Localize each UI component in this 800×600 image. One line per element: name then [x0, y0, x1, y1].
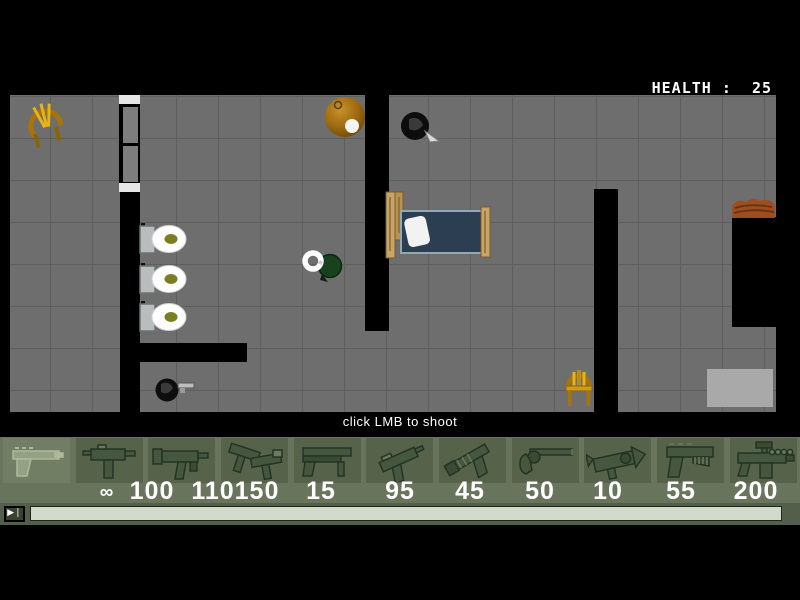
- ammo-count-revolver: 50: [525, 477, 555, 506]
- toilet-3: [138, 300, 188, 336]
- bed: [384, 191, 494, 261]
- ammo-count-mac10: 100: [130, 477, 175, 506]
- machine-pistol-icon: [659, 440, 723, 482]
- enemy-knife: [399, 109, 443, 147]
- door-cap-bottom: [119, 183, 140, 192]
- round-table: [323, 95, 367, 139]
- enemy-pistol: [153, 376, 203, 404]
- wall-left-horizontal: [140, 343, 247, 362]
- ammo-count-desert-eagle: ∞: [100, 482, 115, 504]
- chair-top-left: [22, 97, 70, 151]
- revolver-icon: [514, 440, 578, 482]
- mac10-icon: [78, 440, 142, 482]
- wall-left-vertical: [120, 191, 140, 412]
- weapon-bar: ∞ 100 110 150 15 95 45 50 10 55 200: [0, 437, 800, 503]
- ammo-count-rocket-launcher: 10: [593, 477, 623, 506]
- door-panel-bottom: [122, 145, 139, 183]
- ammo-count-silenced-pistol: 45: [455, 477, 485, 506]
- rocket-launcher-icon: [586, 440, 650, 482]
- ammo-count-shotgun: 15: [306, 477, 336, 506]
- play-button[interactable]: ▶❘: [4, 506, 25, 522]
- weapon-slot-desert-eagle[interactable]: [3, 438, 70, 483]
- player-character: [298, 248, 348, 286]
- desert-eagle-icon: [5, 440, 69, 482]
- toilet-1: [138, 222, 188, 258]
- wall-right-vertical: [594, 189, 618, 412]
- door-cap-top: [119, 95, 140, 104]
- game-stage[interactable]: HEALTH : 25: [0, 0, 800, 600]
- progress-track[interactable]: [30, 506, 782, 521]
- scoped-rifle-icon: [732, 440, 796, 482]
- mp5-icon: [150, 440, 214, 482]
- tmp-icon: [368, 440, 432, 482]
- ammo-count-tmp: 95: [385, 477, 415, 506]
- hint-text: click LMB to shoot: [0, 414, 800, 429]
- shotgun-icon: [296, 440, 360, 482]
- game-map[interactable]: [10, 95, 776, 412]
- wall-far-right-block: [732, 217, 776, 327]
- ammo-count-dual-uzi: 150: [235, 477, 280, 506]
- chair-bottom-right: [563, 365, 595, 411]
- floor-pad: [707, 369, 773, 407]
- ammo-count-machine-pistol: 55: [666, 477, 696, 506]
- ammo-count-mp5: 110: [191, 477, 234, 506]
- door: [119, 95, 140, 192]
- door-panel-top: [122, 106, 139, 144]
- dual-uzi-icon: [223, 440, 287, 482]
- silenced-pistol-icon: [441, 440, 505, 482]
- wood-log: [730, 194, 778, 220]
- playback-bar: ▶❘: [0, 503, 800, 525]
- toilet-2: [138, 262, 188, 298]
- ammo-count-scoped-rifle: 200: [734, 477, 779, 506]
